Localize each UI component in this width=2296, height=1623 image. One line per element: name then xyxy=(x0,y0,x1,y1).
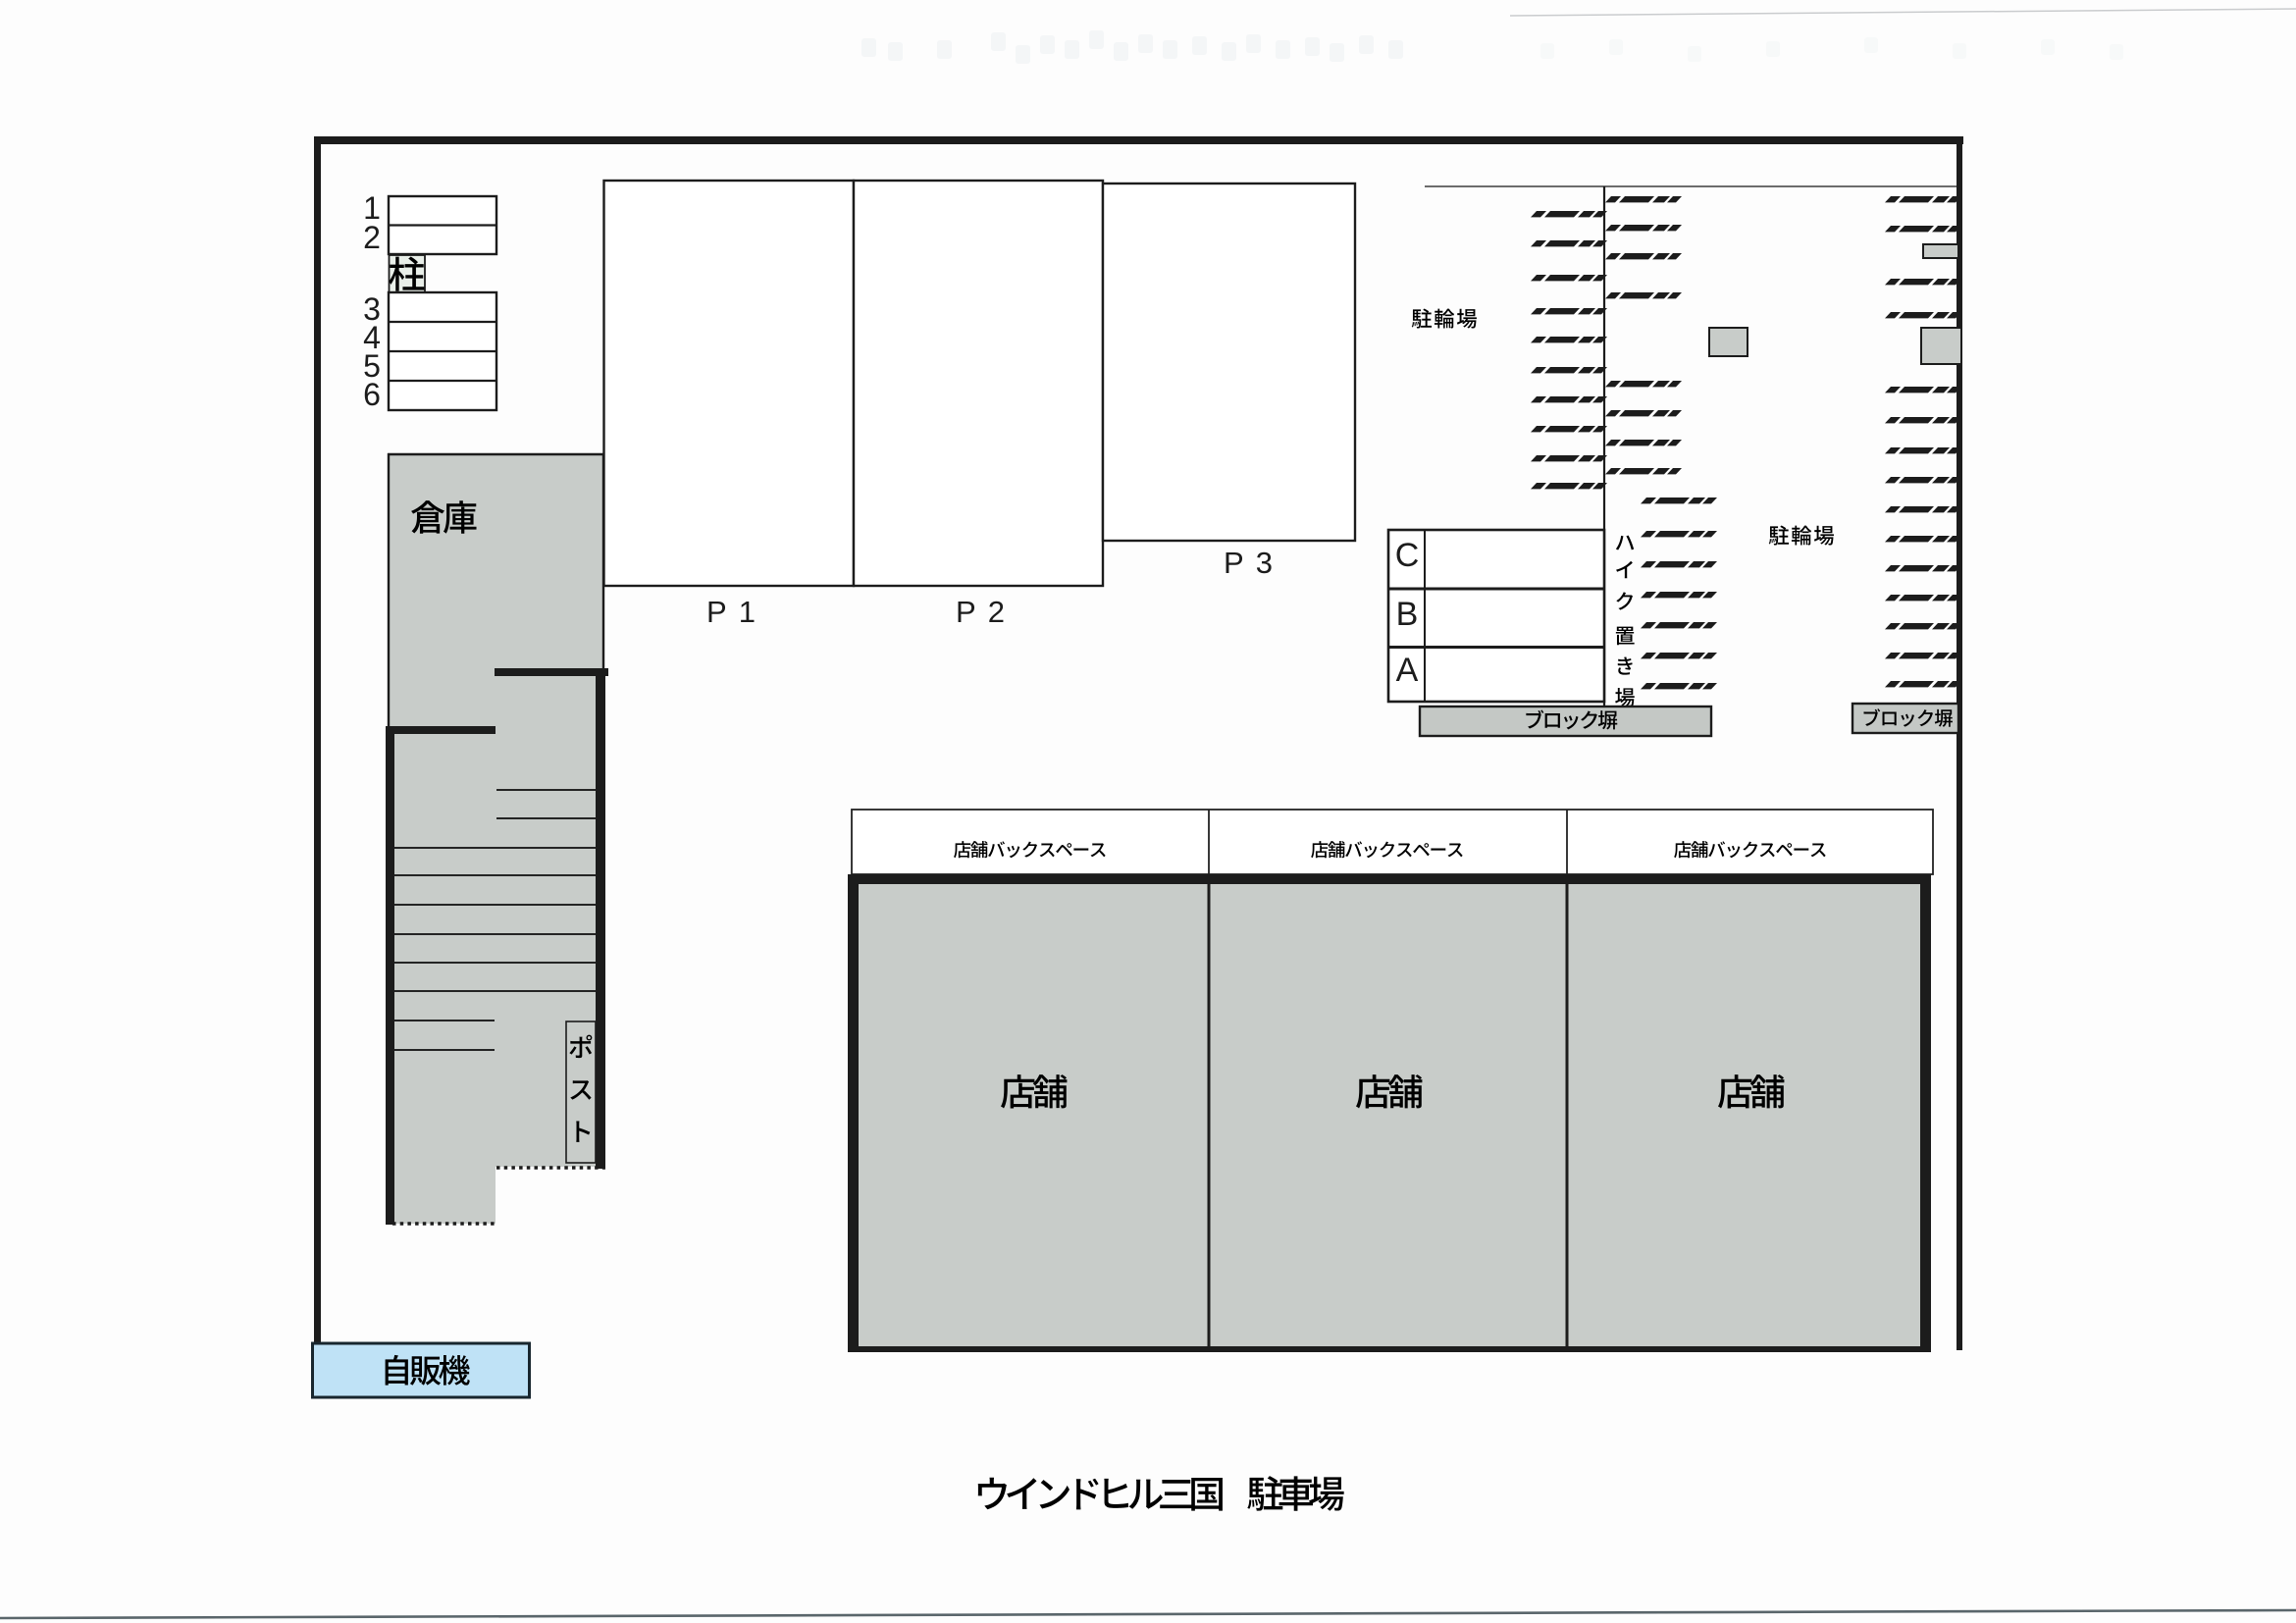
svg-text:B: B xyxy=(1396,596,1419,633)
svg-text:P 3: P 3 xyxy=(1224,546,1275,580)
svg-text:P 1: P 1 xyxy=(706,595,757,629)
svg-text:A: A xyxy=(1396,652,1419,689)
svg-text:6: 6 xyxy=(363,377,381,412)
svg-text:2: 2 xyxy=(363,220,381,255)
svg-text:C: C xyxy=(1395,537,1420,574)
svg-text:P 2: P 2 xyxy=(956,595,1007,629)
